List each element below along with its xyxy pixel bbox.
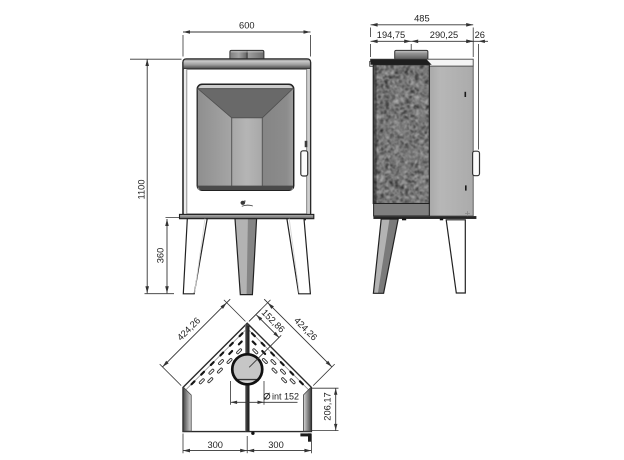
svg-text:26: 26 [475, 30, 485, 40]
svg-text:485: 485 [414, 14, 430, 24]
svg-text:300: 300 [207, 440, 223, 450]
svg-text:1100: 1100 [137, 180, 147, 200]
svg-text:int 152: int 152 [272, 392, 299, 402]
svg-text:360: 360 [156, 248, 166, 264]
svg-text:194,75: 194,75 [377, 30, 405, 40]
svg-text:600: 600 [239, 21, 255, 31]
svg-text:290,25: 290,25 [430, 30, 458, 40]
svg-text:300: 300 [268, 440, 284, 450]
svg-text:206,17: 206,17 [322, 392, 332, 420]
